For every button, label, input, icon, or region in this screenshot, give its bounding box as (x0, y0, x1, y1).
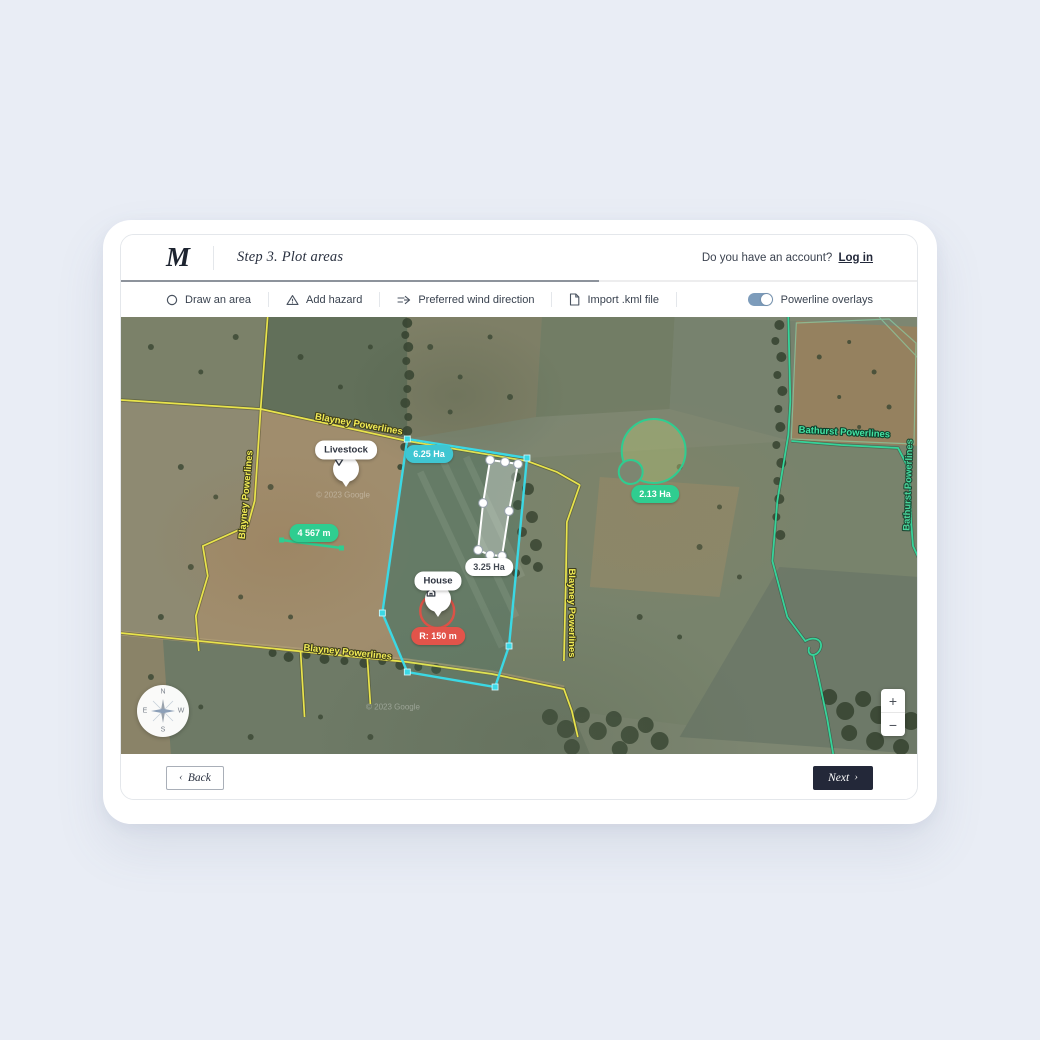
circle-icon (166, 294, 178, 306)
warning-triangle-icon (286, 294, 299, 306)
powerline-label-bathurst: Bathurst Powerlines (798, 425, 890, 441)
add-hazard-button[interactable]: Add hazard (286, 294, 362, 306)
back-button-label: Back (188, 772, 211, 784)
import-kml-label: Import .kml file (587, 294, 659, 306)
toolbar-divider (676, 292, 677, 307)
chevron-left-icon: ‹ (179, 772, 183, 783)
toolbar-divider (379, 292, 380, 307)
wind-direction-label: Preferred wind direction (418, 294, 534, 306)
wind-direction-icon (397, 294, 411, 306)
compass-s: S (161, 727, 166, 734)
zoom-in-button[interactable]: + (881, 689, 905, 712)
compass-w: W (178, 708, 185, 715)
compass-n: N (160, 689, 165, 696)
draw-area-button[interactable]: Draw an area (166, 294, 251, 306)
account-prompt: Do you have an account? Log in (702, 252, 873, 264)
header-divider (213, 246, 214, 270)
header: M Step 3. Plot areas Do you have an acco… (121, 235, 917, 280)
file-icon (569, 293, 580, 306)
powerline-label-blayney-top: Blayney Powerlines (314, 411, 403, 437)
map-canvas[interactable]: Blayney Powerlines Blayney Powerlines Bl… (121, 317, 917, 754)
wind-direction-button[interactable]: Preferred wind direction (397, 294, 534, 306)
compass[interactable]: N S E W (137, 685, 189, 737)
brand-logo: M (166, 244, 190, 271)
next-button-label: Next (828, 772, 849, 784)
area-badge-625: 6.25 Ha (405, 445, 453, 463)
powerline-overlays-label: Powerline overlays (781, 294, 873, 306)
house-radius-badge: R: 150 m (411, 627, 465, 645)
import-kml-button[interactable]: Import .kml file (569, 293, 659, 306)
compass-star-icon (148, 696, 178, 726)
powerline-label-bathurst-right: Bathurst Powerlines (901, 439, 915, 531)
toggle-knob (761, 294, 772, 305)
add-hazard-label: Add hazard (306, 294, 362, 306)
draw-area-label: Draw an area (185, 294, 251, 306)
area-badge-325: 3.25 Ha (465, 558, 513, 576)
powerline-label-blayney-bottom: Blayney Powerlines (303, 642, 393, 662)
chevron-right-icon: › (854, 772, 858, 783)
account-prompt-text: Do you have an account? (702, 252, 832, 264)
map-overlays: Blayney Powerlines Blayney Powerlines Bl… (121, 317, 917, 754)
powerline-label-blayney-left: Blayney Powerlines (237, 450, 256, 540)
next-button[interactable]: Next › (813, 766, 873, 790)
wizard-inner-panel: M Step 3. Plot areas Do you have an acco… (120, 234, 918, 800)
livestock-marker[interactable] (333, 456, 359, 482)
toolbar-divider (551, 292, 552, 307)
powerline-label-blayney-right: Blayney Powerlines (566, 568, 577, 657)
distance-badge: 4 567 m (289, 524, 338, 542)
login-link[interactable]: Log in (839, 252, 874, 264)
livestock-label: Livestock (315, 441, 377, 460)
zoom-control: + − (881, 689, 905, 736)
house-label: House (414, 572, 461, 591)
powerline-overlays-toggle[interactable] (748, 293, 773, 306)
area-badge-213: 2.13 Ha (631, 485, 679, 503)
toolbar: Draw an area Add hazard Preferred wind d… (121, 282, 917, 317)
wizard-card: M Step 3. Plot areas Do you have an acco… (103, 220, 937, 824)
back-button[interactable]: ‹ Back (166, 766, 224, 790)
circle-area[interactable] (619, 419, 686, 484)
toolbar-divider (268, 292, 269, 307)
footer: ‹ Back Next › (121, 754, 917, 800)
page-title: Step 3. Plot areas (237, 249, 343, 266)
compass-e: E (143, 708, 148, 715)
zoom-out-button[interactable]: − (881, 713, 905, 736)
